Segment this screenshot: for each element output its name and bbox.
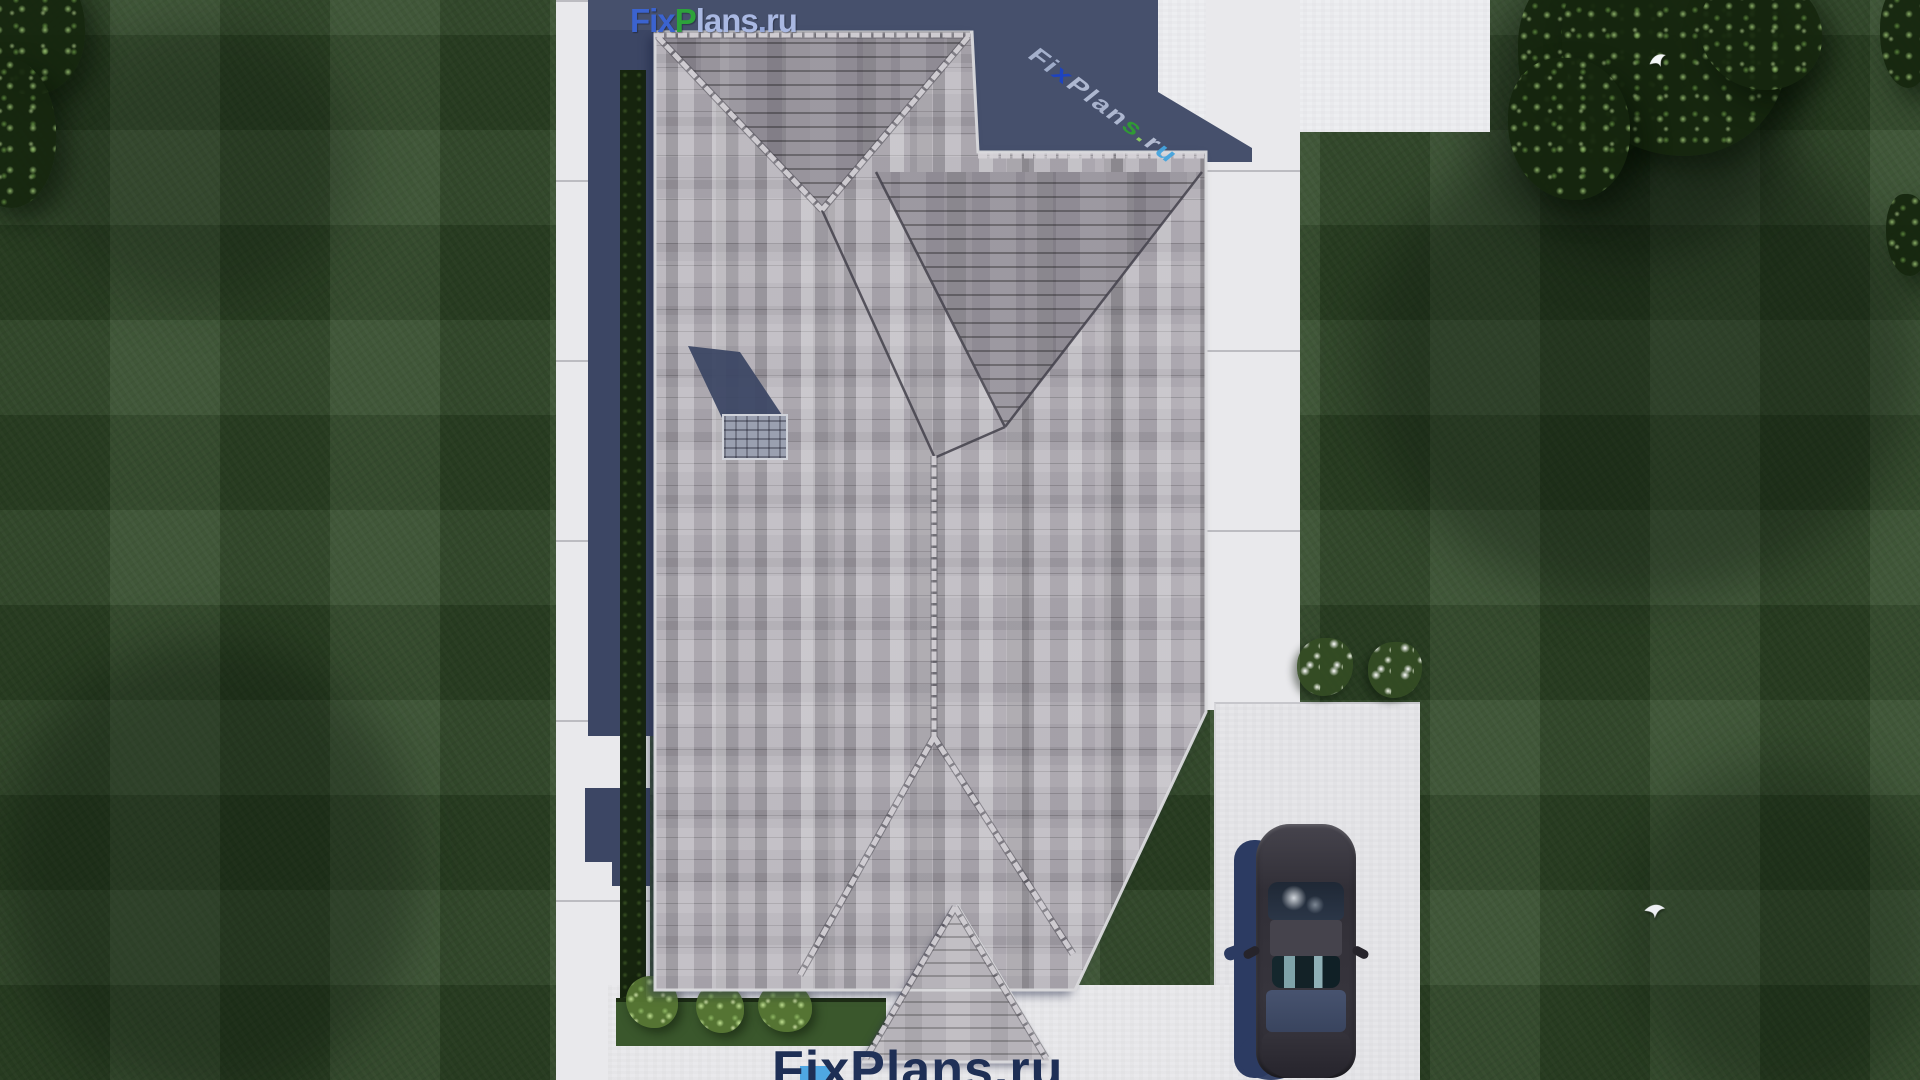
watermark-logo-top: FixPlans.ru — [630, 2, 797, 40]
car — [1256, 824, 1356, 1078]
watermark-letter: s — [740, 2, 757, 39]
watermark-letter: a — [704, 2, 721, 39]
watermark-letter: s — [964, 1041, 994, 1080]
watermark-logo-bottom-cropped: FixPlans.ru — [772, 1044, 1063, 1080]
watermark-letter: n — [931, 1041, 964, 1080]
watermark-letter: r — [1009, 1041, 1030, 1080]
porch-gable-slope — [0, 0, 1920, 1080]
watermark-letter: r — [766, 2, 778, 39]
aerial-render-scene: FixPlans.ru FixPlans.ru FixPlans.ru — [0, 0, 1920, 1080]
watermark-letter: u — [1031, 1041, 1064, 1080]
watermark-letter: x — [820, 1041, 850, 1080]
car-windshield — [1268, 882, 1344, 920]
chimney — [722, 414, 788, 460]
watermark-letter: . — [994, 1041, 1009, 1080]
car-rear-window — [1272, 956, 1340, 988]
watermark-letter: n — [721, 2, 740, 39]
car-roof — [1270, 920, 1342, 956]
car-tail — [1262, 1032, 1350, 1078]
watermark-letter: . — [758, 2, 766, 39]
watermark-letter: l — [886, 1041, 901, 1080]
watermark-letter: F — [630, 2, 649, 39]
watermark-letter: x — [657, 2, 674, 39]
watermark-letter: i — [805, 1041, 820, 1080]
watermark-letter: u — [778, 2, 797, 39]
watermark-letter: a — [901, 1041, 931, 1080]
watermark-letter: F — [772, 1041, 805, 1080]
porch-gable — [0, 0, 1920, 1080]
car-trunk-deck — [1266, 990, 1346, 1032]
watermark-letter: P — [850, 1041, 886, 1080]
watermark-letter: l — [696, 2, 704, 39]
watermark-letter: P — [675, 2, 696, 39]
